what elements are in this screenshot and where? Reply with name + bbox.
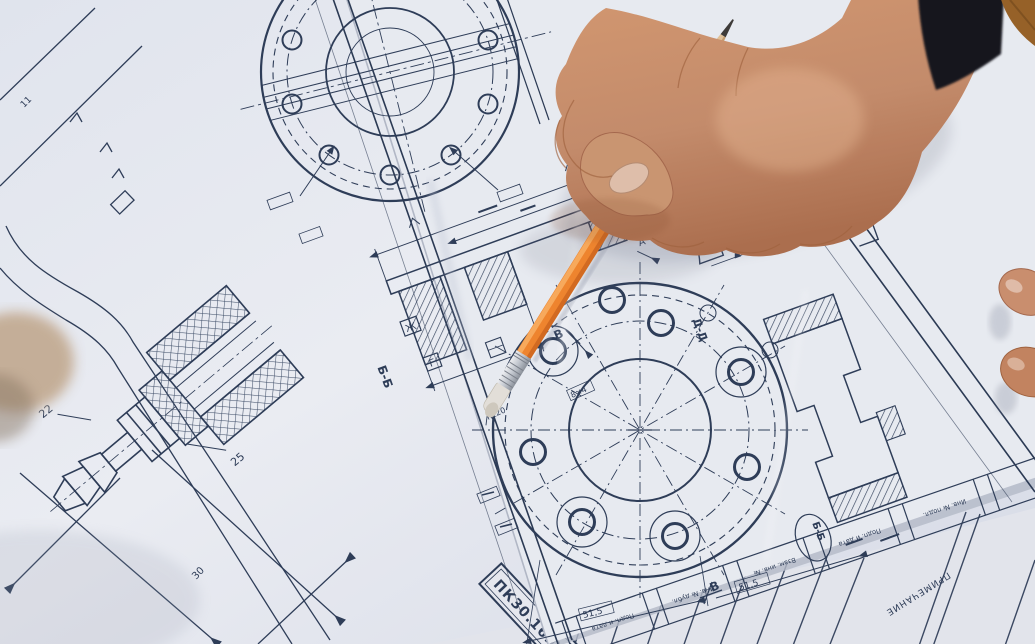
- scene-canvas: 11 30 22 25: [0, 0, 1035, 644]
- photo-blueprints-scene: 11 30 22 25: [0, 0, 1035, 644]
- vignette: [0, 0, 1035, 644]
